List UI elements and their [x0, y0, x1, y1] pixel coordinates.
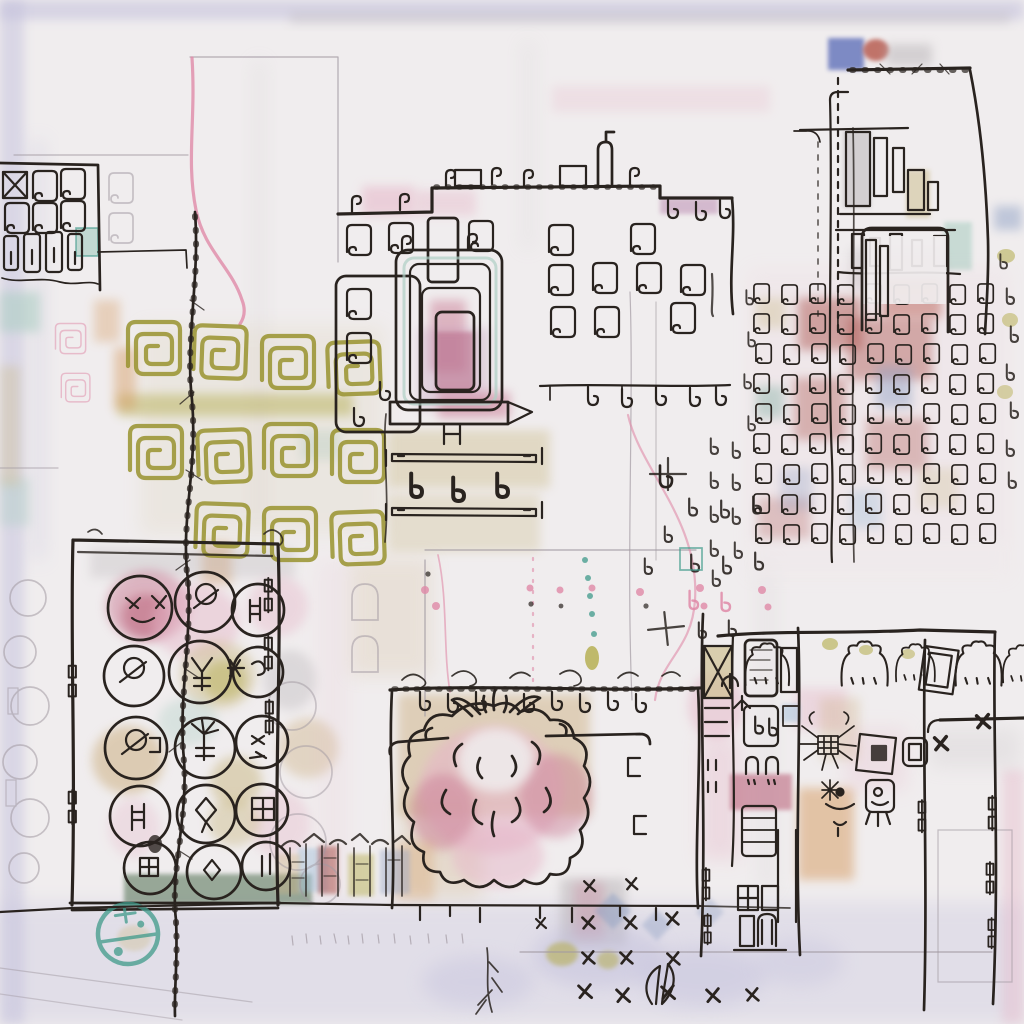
rb-olive-dot-2 — [859, 645, 873, 655]
teal-chip — [76, 228, 98, 256]
dark-dot — [643, 603, 648, 608]
olive-drip — [585, 646, 599, 670]
pink-dot — [696, 584, 704, 592]
pink-dot — [527, 585, 534, 592]
dark-dot — [559, 604, 564, 609]
grid-fade — [744, 540, 1010, 582]
central-inner-edge — [712, 274, 713, 316]
right-edge-slate — [994, 206, 1022, 230]
rb-orange — [798, 788, 854, 880]
olive-band — [118, 394, 353, 416]
pink-dot — [765, 604, 772, 611]
grove-olive-star — [202, 660, 246, 700]
teal-dot — [589, 611, 595, 617]
red-dot-wash — [863, 39, 889, 61]
gray-blob-roof — [886, 44, 932, 66]
strip-slate — [380, 850, 410, 894]
paper-streak-2 — [520, 40, 536, 250]
pink-dot — [636, 588, 644, 596]
pink-dot — [758, 586, 766, 594]
belly-dot — [837, 789, 844, 796]
teal-dot — [582, 557, 588, 563]
olive-orange-1 — [114, 348, 136, 410]
mast-tower-interior — [862, 236, 946, 304]
artwork-canvas — [0, 0, 1024, 1024]
pink-dot — [701, 603, 708, 610]
frame-inner — [872, 746, 886, 760]
edge-olive-dot-3 — [997, 385, 1013, 399]
topiary-highlight — [458, 728, 534, 792]
rb-olive-dot-1 — [822, 638, 838, 650]
teal-dot — [591, 631, 597, 637]
edge-olive-dot-2 — [1002, 313, 1018, 327]
teal-dot — [585, 575, 591, 581]
below-rails-tan — [350, 558, 432, 676]
dark-dot — [528, 601, 533, 606]
bottom-olive-1 — [546, 942, 578, 966]
bottom-olive-2 — [597, 951, 619, 969]
paper-top-streak — [290, 12, 1010, 24]
pink-dot — [421, 586, 429, 594]
grid-blue-3 — [780, 468, 812, 510]
left-teal-1 — [0, 292, 40, 332]
grove-tan-1 — [92, 726, 164, 794]
grid-red-5 — [866, 418, 928, 470]
rail-khaki-2 — [388, 494, 540, 552]
paper-right-corner-tint — [1002, 770, 1024, 1024]
pink-dot — [432, 602, 440, 610]
pink-dot — [557, 587, 564, 594]
blue-square-wash — [828, 38, 864, 70]
orange-seed-dot — [148, 835, 162, 853]
teal-dot — [587, 593, 593, 599]
pink-dot — [589, 585, 596, 592]
cityscape-drawing — [0, 0, 1024, 1024]
topiary-pink-2 — [452, 824, 544, 888]
ghost-pink-band — [552, 86, 770, 112]
rb-rose-block — [730, 774, 792, 810]
tower-bar-wash — [843, 130, 871, 208]
olive-orange-3 — [94, 300, 120, 342]
dark-dot — [425, 571, 430, 576]
bottom-lav-2 — [422, 956, 534, 1008]
hanging-rail — [540, 385, 730, 386]
